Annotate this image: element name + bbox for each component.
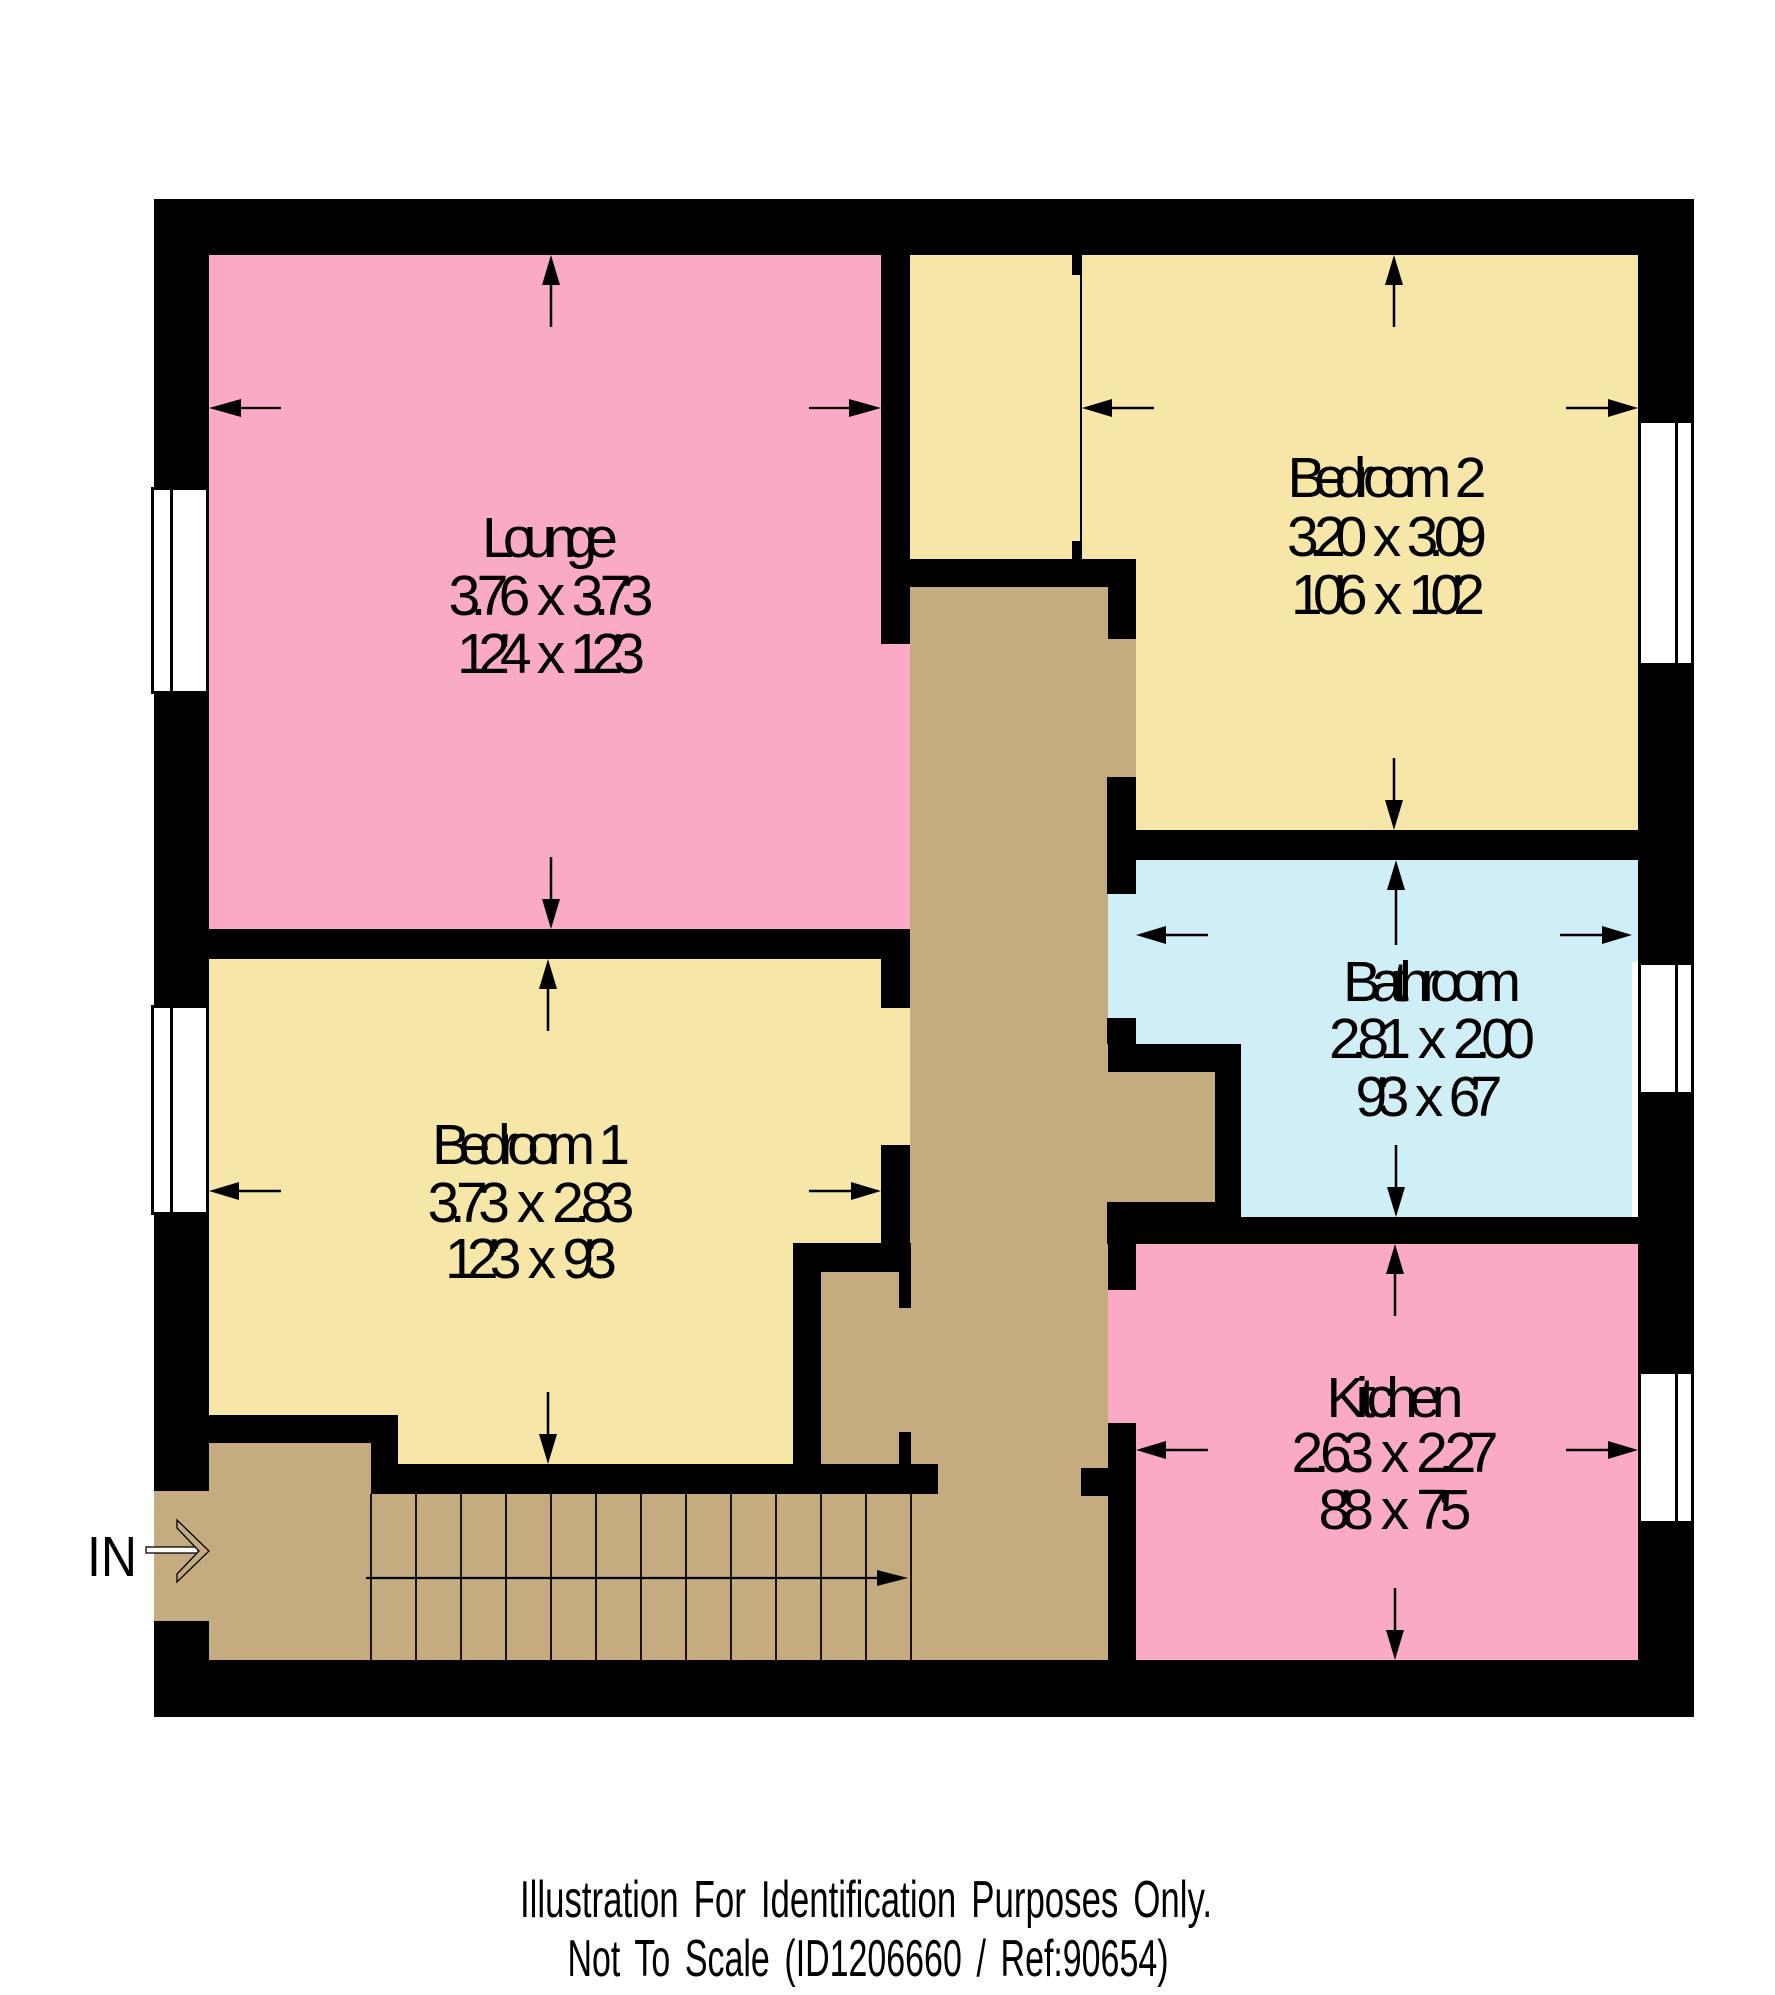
svg-text:IN: IN [87, 1525, 137, 1589]
svg-text:10'6 x 10'2: 10'6 x 10'2 [1291, 563, 1485, 627]
svg-text:12'3 x 9'3: 12'3 x 9'3 [445, 1227, 617, 1291]
svg-text:Bedroom 2: Bedroom 2 [1288, 446, 1487, 510]
svg-text:Illustration For Identificatio: Illustration For Identification Purposes… [520, 1871, 1212, 1929]
svg-text:3.73 x 2.83: 3.73 x 2.83 [428, 1171, 635, 1235]
svg-text:2.63 x 2.27: 2.63 x 2.27 [1292, 1421, 1499, 1485]
svg-text:Not To Scale (ID1206660 / Ref:: Not To Scale (ID1206660 / Ref:90654) [568, 1930, 1169, 1988]
svg-text:8'8 x 7'5: 8'8 x 7'5 [1319, 1478, 1472, 1542]
svg-text:3.76 x 3.73: 3.76 x 3.73 [449, 564, 654, 628]
svg-text:Bathroom: Bathroom [1343, 950, 1521, 1014]
svg-text:9'3 x 6'7: 9'3 x 6'7 [1356, 1065, 1503, 1129]
svg-text:3.20 x 3.09: 3.20 x 3.09 [1287, 505, 1487, 569]
svg-text:12'4 x 12'3: 12'4 x 12'3 [457, 622, 645, 686]
svg-text:Lounge: Lounge [482, 506, 618, 570]
svg-text:Bedroom 1: Bedroom 1 [432, 1113, 630, 1177]
svg-text:2.81 x 2.00: 2.81 x 2.00 [1329, 1007, 1535, 1071]
